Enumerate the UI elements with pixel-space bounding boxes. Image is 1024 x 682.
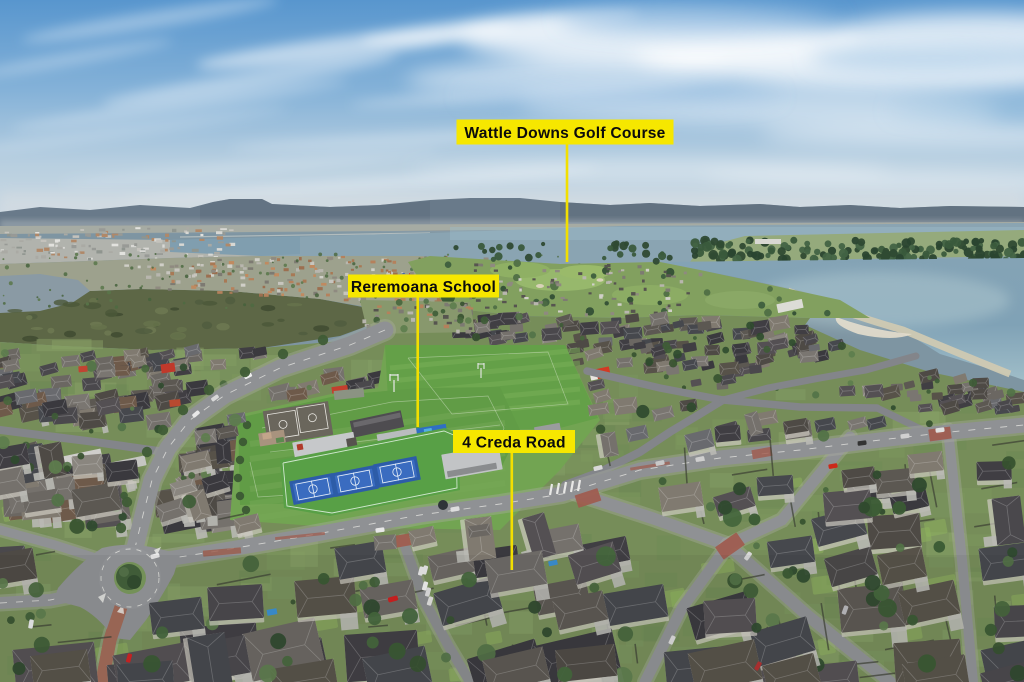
svg-text:Wattle Downs Golf Course: Wattle Downs Golf Course	[464, 125, 665, 142]
svg-text:4 Creda Road: 4 Creda Road	[462, 434, 566, 451]
svg-text:Reremoana School: Reremoana School	[351, 279, 496, 296]
